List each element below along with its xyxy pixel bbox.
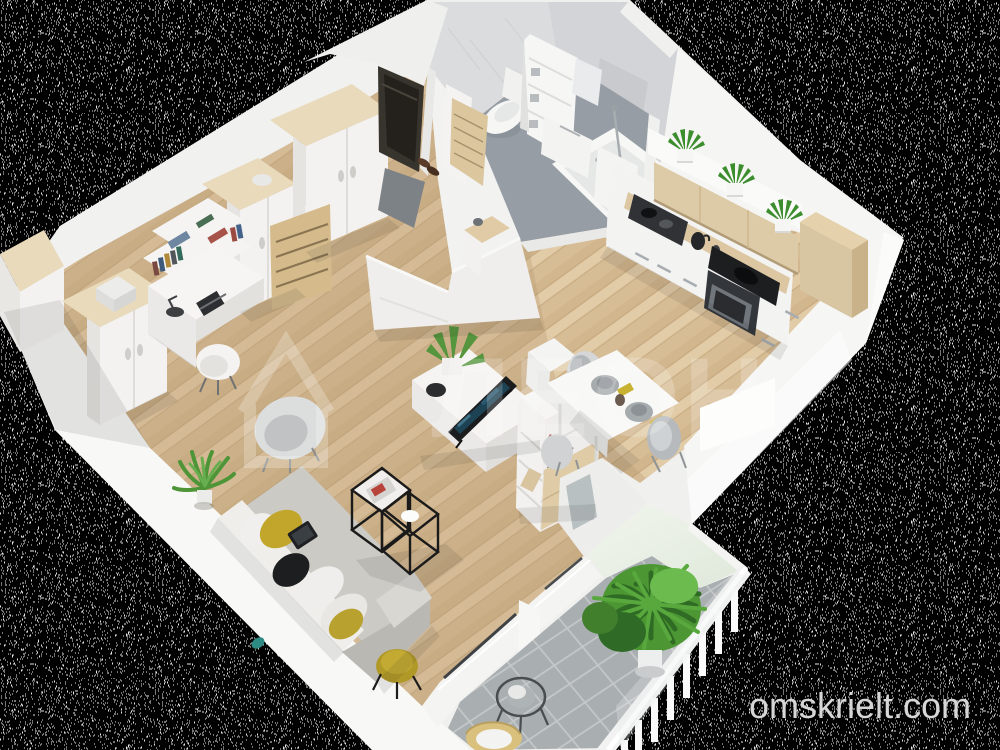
svg-text:ЛЕОН: ЛЕОН (431, 335, 768, 460)
svg-text:omskrielt.com: omskrielt.com (749, 685, 971, 726)
